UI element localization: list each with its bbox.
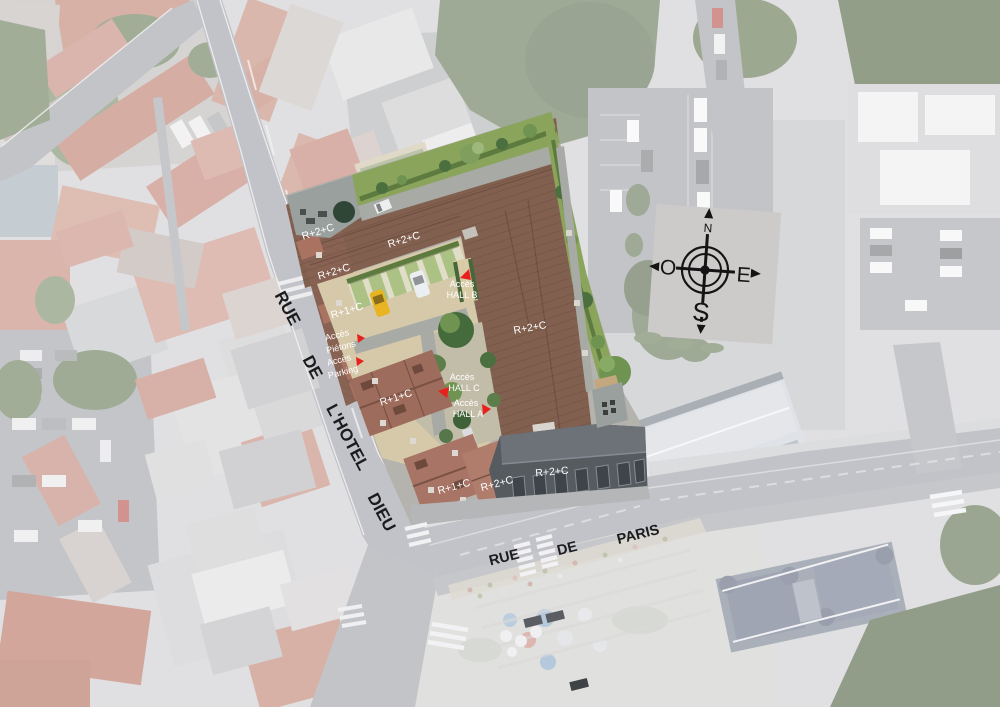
svg-text:HALL A: HALL A	[453, 409, 483, 419]
svg-text:Accès: Accès	[450, 372, 475, 382]
svg-text:HALL B: HALL B	[447, 290, 478, 300]
svg-text:HALL C: HALL C	[448, 383, 480, 393]
svg-text:O: O	[659, 256, 677, 280]
svg-text:E: E	[736, 263, 752, 287]
svg-text:Accès: Accès	[450, 279, 475, 289]
svg-text:N: N	[703, 221, 713, 236]
svg-text:S: S	[691, 296, 710, 327]
svg-text:Accès: Accès	[454, 398, 479, 408]
